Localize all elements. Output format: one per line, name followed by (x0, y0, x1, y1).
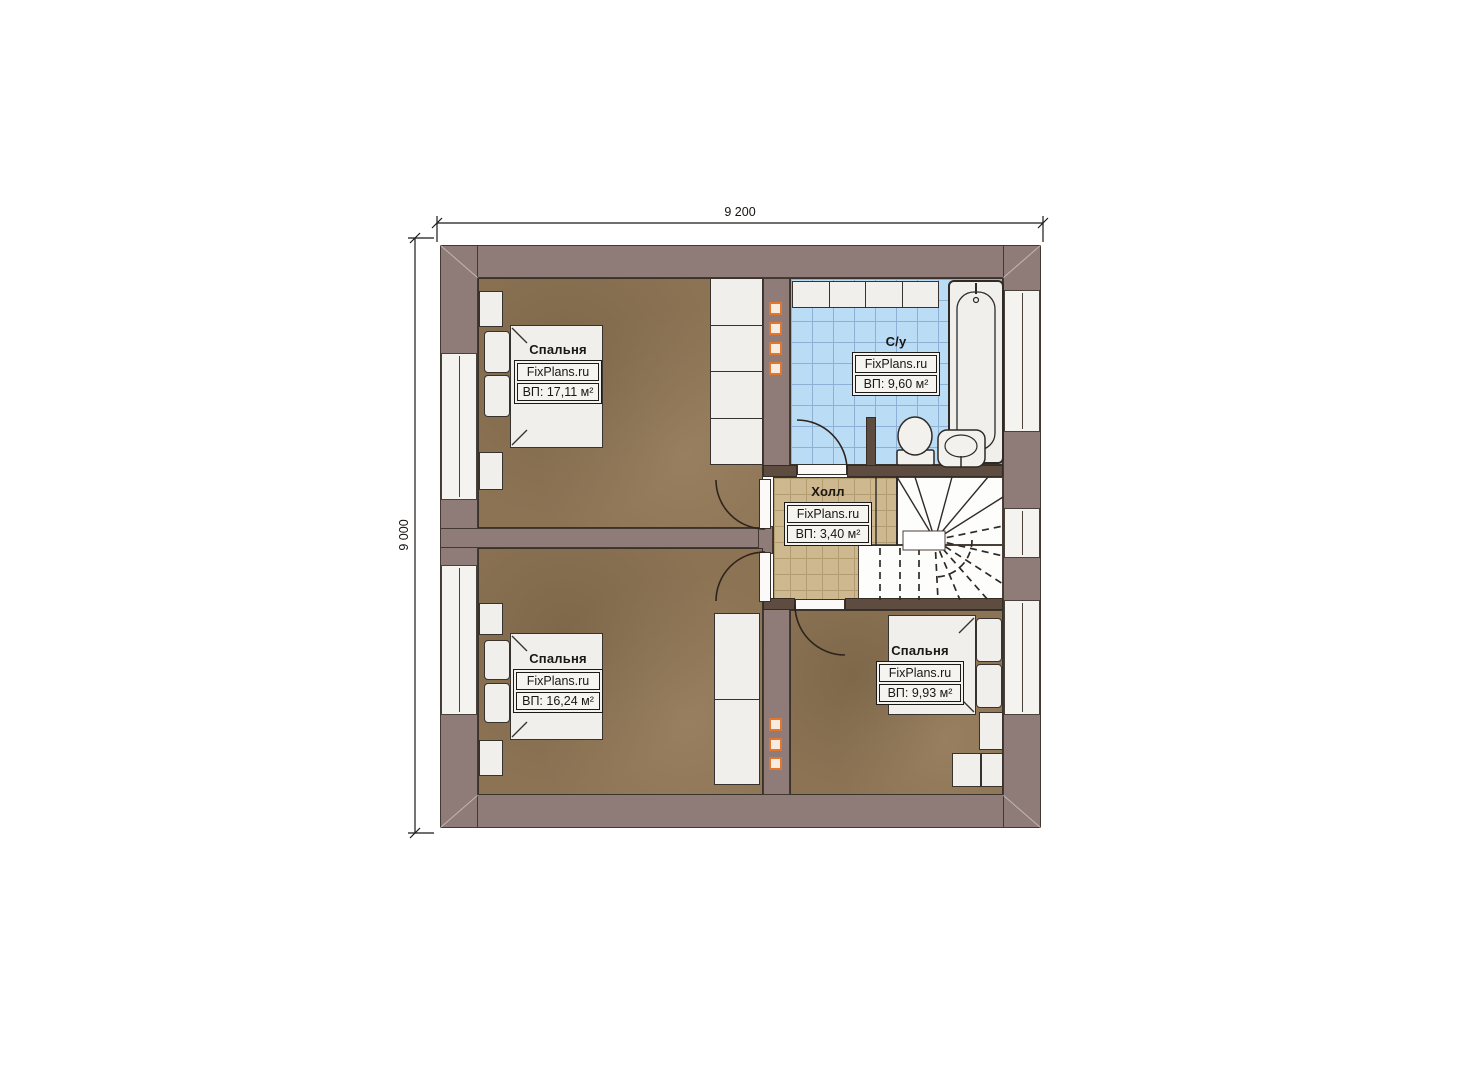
window-right-bedroom (1004, 600, 1040, 715)
window-right-stairs (1004, 508, 1040, 558)
wall-marker (769, 738, 782, 751)
room-area: ВП: 9,93 м² (879, 684, 961, 702)
room-area: ВП: 9,60 м² (855, 375, 937, 393)
wall-bathroom-south-right (847, 465, 1003, 477)
room-name: Спальня (864, 643, 976, 658)
door-bedroom-bottom-right (795, 599, 845, 610)
room-label-bedroom-bottom-left: Спальня FixPlans.ru ВП: 16,24 м² (500, 651, 616, 713)
pillow (976, 664, 1002, 708)
wall-marker (769, 362, 782, 375)
room-name: Спальня (500, 342, 616, 357)
room-brand: FixPlans.ru (879, 664, 961, 682)
room-label-bedroom-top-left: Спальня FixPlans.ru ВП: 17,11 м² (500, 342, 616, 404)
room-brand: FixPlans.ru (855, 355, 937, 373)
room-name: С/у (845, 334, 947, 349)
room-info-box: FixPlans.ru ВП: 9,60 м² (852, 352, 940, 396)
wall-marker (769, 718, 782, 731)
corner-cabinet (952, 753, 981, 787)
room-area: ВП: 16,24 м² (516, 692, 600, 710)
window-left-upper (441, 353, 477, 500)
wall-marker (769, 302, 782, 315)
wall-between-left-bedrooms (440, 528, 763, 548)
bathroom-cabinet-row (792, 281, 939, 308)
floor-plan-canvas: 9 200 9 000 Спальня FixPlans.ru ВП: 17,1… (0, 0, 1473, 1080)
dimension-left-label: 9 000 (397, 495, 411, 575)
room-area: ВП: 17,11 м² (517, 383, 600, 401)
stair-area-upper (897, 477, 1003, 545)
room-name: Холл (780, 484, 876, 499)
room-info-box: FixPlans.ru ВП: 16,24 м² (513, 669, 603, 713)
wardrobe-bottom-left (714, 613, 760, 785)
wall-marker (769, 757, 782, 770)
wall-bathroom-partition-stub (866, 417, 876, 466)
stair-area-lower (858, 545, 1003, 600)
wall-hall-south-right (845, 598, 1003, 610)
nightstand (479, 452, 503, 490)
nightstand (979, 712, 1003, 750)
pillow (976, 618, 1002, 662)
room-info-box: FixPlans.ru ВП: 3,40 м² (784, 502, 872, 546)
room-brand: FixPlans.ru (516, 672, 600, 690)
room-label-bathroom: С/у FixPlans.ru ВП: 9,60 м² (845, 334, 947, 396)
wall-bathroom-south-left (763, 465, 797, 477)
room-info-box: FixPlans.ru ВП: 9,93 м² (876, 661, 964, 705)
room-brand: FixPlans.ru (517, 363, 600, 381)
nightstand (479, 291, 503, 327)
wall-marker (769, 322, 782, 335)
room-name: Спальня (500, 651, 616, 666)
room-area: ВП: 3,40 м² (787, 525, 869, 543)
wall-marker (769, 342, 782, 355)
wall-bottom (440, 792, 1041, 828)
door-bedroom-top-left (759, 479, 771, 529)
dimension-top-label: 9 200 (690, 205, 790, 219)
nightstand (479, 740, 503, 776)
door-bathroom (797, 464, 847, 475)
room-label-bedroom-bottom-right: Спальня FixPlans.ru ВП: 9,93 м² (864, 643, 976, 705)
corner-cabinet (981, 753, 1003, 787)
window-right-bathroom (1004, 290, 1040, 432)
room-info-box: FixPlans.ru ВП: 17,11 м² (514, 360, 603, 404)
room-brand: FixPlans.ru (787, 505, 869, 523)
wardrobe-top-left (710, 278, 763, 465)
window-left-lower (441, 565, 477, 715)
wall-top (440, 245, 1041, 278)
door-bedroom-bottom-left (759, 552, 771, 602)
room-label-hall: Холл FixPlans.ru ВП: 3,40 м² (780, 484, 876, 546)
nightstand (479, 603, 503, 635)
